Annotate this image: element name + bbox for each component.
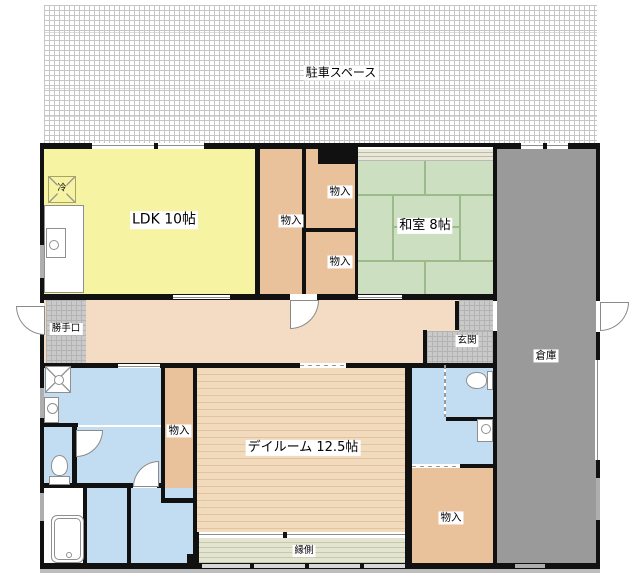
label-storage: 倉庫 (534, 349, 559, 362)
ground-shadow (40, 569, 600, 573)
closet-divider (306, 228, 355, 232)
wall-dayroom-east (405, 363, 412, 563)
wall-genkan-step (455, 301, 459, 330)
room-changing (87, 488, 127, 563)
washroom-door-opening (118, 364, 160, 368)
toilet-west-bowl (51, 455, 68, 476)
wall-top (358, 143, 493, 147)
toilet-east-tank (487, 371, 493, 390)
tatami-line (424, 260, 426, 296)
wall-top (493, 143, 521, 149)
label-veranda: 縁側 (292, 545, 315, 557)
wall-top (40, 143, 92, 149)
label-closet: 物入 (328, 255, 353, 268)
bathtub-drain (66, 552, 72, 558)
tatami-line (459, 196, 461, 262)
label-closet: 物入 (167, 424, 192, 437)
parking-label: 駐車スペース (304, 66, 379, 81)
door-storage-east (600, 302, 629, 331)
label-closet: 物入 (439, 511, 464, 524)
washroom-basin (47, 403, 58, 414)
ldk-corridor-opening (173, 295, 230, 299)
tatami-line (392, 196, 394, 262)
window-left-bathroom (40, 493, 44, 521)
window-right-storage (595, 360, 600, 460)
wall-ldk-closet (255, 149, 260, 296)
dayroom-north-window (300, 363, 346, 368)
wall-closet-se-north (460, 464, 493, 468)
sanitary-east-basin (481, 424, 491, 434)
door-katteguchi (16, 306, 45, 335)
window-bottom-storage (515, 564, 545, 568)
toilet-east-partition (444, 365, 446, 417)
washitsu-corridor-opening (358, 295, 402, 299)
label-dayroom: デイルーム 12.5帖 (246, 440, 361, 456)
label-washitsu: 和室 8帖 (397, 218, 452, 234)
label-genkan: 玄関 (455, 335, 478, 347)
window-mullion (543, 143, 547, 149)
veranda-south-window (202, 564, 405, 568)
kitchen-faucet (49, 240, 59, 250)
label-ldk: LDK 10帖 (130, 211, 198, 229)
closet-se-sliding (412, 464, 460, 468)
wall-changing-hall (127, 488, 131, 563)
wall-closet-day-south (161, 498, 197, 503)
label-katteguchi: 勝手口 (50, 323, 83, 335)
toilet-east-bowl (466, 372, 487, 389)
washitsu-window-strip (358, 149, 493, 161)
corner-block (187, 554, 197, 563)
closet-column (306, 149, 355, 296)
washing-machine-drum (54, 375, 64, 385)
wall-storage-west (493, 149, 497, 563)
wall-corridor-north (40, 294, 497, 300)
window-top-ldk (92, 143, 204, 149)
wall-genkan-west (423, 330, 427, 363)
label-closet: 物入 (279, 214, 304, 227)
genkan-storage-gap (493, 301, 497, 331)
window-mullion (154, 143, 158, 149)
tatami-line (424, 161, 426, 196)
label-closet: 物入 (328, 185, 353, 198)
floor-plan: 駐車スペース (0, 0, 640, 579)
toilet-west-tank (49, 476, 70, 485)
window-right-storage-small (596, 478, 600, 520)
wall-closet-washitsu (355, 149, 358, 296)
closet-black-box (318, 149, 355, 164)
genkan-floor-upper (459, 300, 493, 331)
wall-corridor-south (40, 363, 497, 368)
label-fridge: 冷 (57, 183, 66, 194)
wall-dayroom-west (193, 368, 197, 532)
